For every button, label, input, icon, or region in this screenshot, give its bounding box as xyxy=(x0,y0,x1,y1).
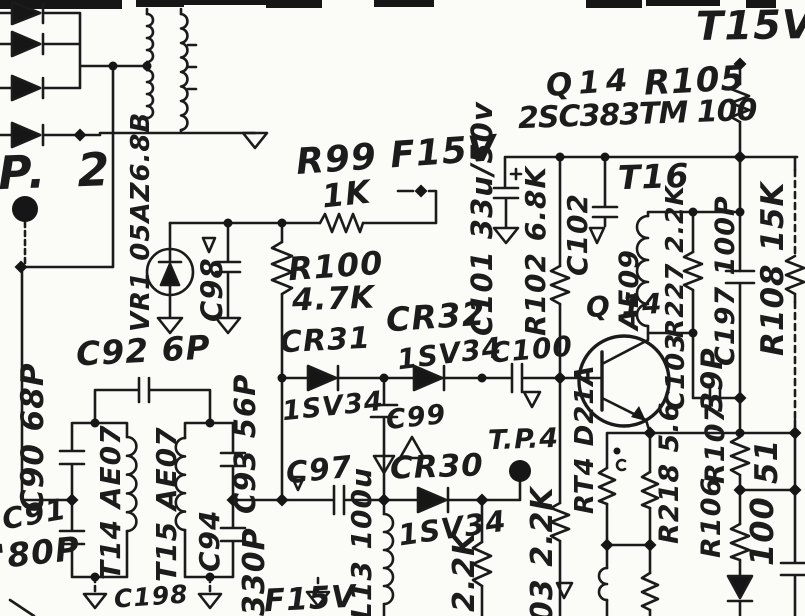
label-r106: R106 xyxy=(698,477,725,558)
diode-icon xyxy=(728,576,752,598)
label-r108: R108 15K xyxy=(758,181,789,356)
label-r218: R218 5.6 xyxy=(656,402,683,544)
label-r107-value: 51 xyxy=(752,439,783,484)
label-q14: Q14 xyxy=(545,65,634,102)
label-t15: T15 AE07 xyxy=(153,426,181,582)
label-t15v: T15V xyxy=(696,5,805,47)
label-t14: T14 AE07 xyxy=(97,424,125,580)
tp4-testpoint-icon xyxy=(509,460,531,482)
delta-mark-icon xyxy=(524,392,540,407)
label-r106-value: 100 xyxy=(746,496,778,566)
label-c97: C97 xyxy=(285,453,355,490)
label-c91-value: '80P xyxy=(0,532,82,574)
c92-capacitor-icon xyxy=(95,378,210,423)
label-r227: R227 2.2K xyxy=(662,185,687,338)
label-c102: C102 xyxy=(564,193,592,276)
r99-resistor-icon xyxy=(170,191,436,232)
tp2-testpoint-icon xyxy=(12,196,38,222)
scan-edge-artifacts-icon xyxy=(0,0,776,9)
label-f15v-bottom: F15V xyxy=(263,582,357,616)
label-c94: C94 xyxy=(196,509,224,572)
label-rt4: RT4 D21A xyxy=(572,364,598,514)
label-r100-value: 4.7K xyxy=(291,283,375,317)
label-cr30: CR30 xyxy=(389,450,484,484)
label-c100: C100 xyxy=(489,332,574,367)
label-tp2: P. 2 xyxy=(0,146,118,196)
label-c103: C103 xyxy=(663,333,689,410)
ground-icon xyxy=(243,133,267,148)
schematic-scan: P. 2 R99 F15V 1K R100 4.7K CR31 1SV34 CR… xyxy=(0,0,805,616)
label-vr1: VR1 05AZ6.8B xyxy=(128,112,154,332)
label-ae09: AE09 xyxy=(616,249,643,330)
label-c101: C101 33u/50v xyxy=(468,101,497,336)
label-c92: C92 6P xyxy=(75,330,211,370)
label-r99-value: 1K xyxy=(320,176,372,213)
label-c98: C98 xyxy=(198,257,227,322)
label-r102: R102 6.8K xyxy=(522,166,550,336)
label-r107: R107 xyxy=(702,403,729,484)
label-r2k2: 2.2K xyxy=(450,532,480,612)
label-c39p: 39P xyxy=(698,347,727,412)
label-q14-type: 2SC383TM 100 xyxy=(518,96,757,134)
label-c93: C93 56P xyxy=(231,374,260,514)
label-c90: C90 68P xyxy=(18,362,49,512)
label-c197: C197 100P xyxy=(712,195,739,366)
cr31-diode-icon xyxy=(282,366,414,390)
rectifier-diodes-icon xyxy=(0,2,147,147)
l13-inductor-icon xyxy=(384,500,393,616)
label-c94-value: 330P xyxy=(240,527,270,616)
label-l13: L13 100u xyxy=(348,467,376,616)
delta-mark-icon xyxy=(203,238,215,252)
c102-capacitor-icon xyxy=(590,157,617,243)
label-c198: C198 xyxy=(113,581,189,611)
label-cr31: CR31 xyxy=(279,324,371,359)
label-r103: 03 2.2K xyxy=(528,486,558,616)
label-tp4: T.P.4 xyxy=(488,425,560,454)
label-c99: C99 xyxy=(385,401,448,434)
